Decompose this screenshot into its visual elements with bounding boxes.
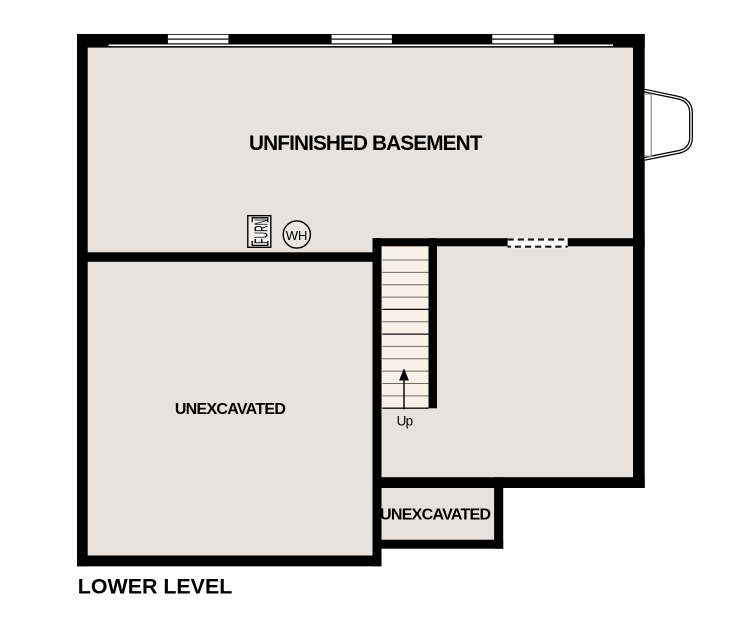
svg-text:LOWER LEVEL: LOWER LEVEL bbox=[78, 574, 233, 598]
svg-text:UNEXCAVATED: UNEXCAVATED bbox=[380, 506, 490, 523]
svg-text:Up: Up bbox=[397, 413, 413, 428]
svg-text:FURN: FURN bbox=[252, 219, 272, 244]
svg-text:WH: WH bbox=[286, 228, 308, 243]
svg-text:UNEXCAVATED: UNEXCAVATED bbox=[175, 401, 285, 418]
svg-text:UNFINISHED BASEMENT: UNFINISHED BASEMENT bbox=[249, 132, 483, 155]
